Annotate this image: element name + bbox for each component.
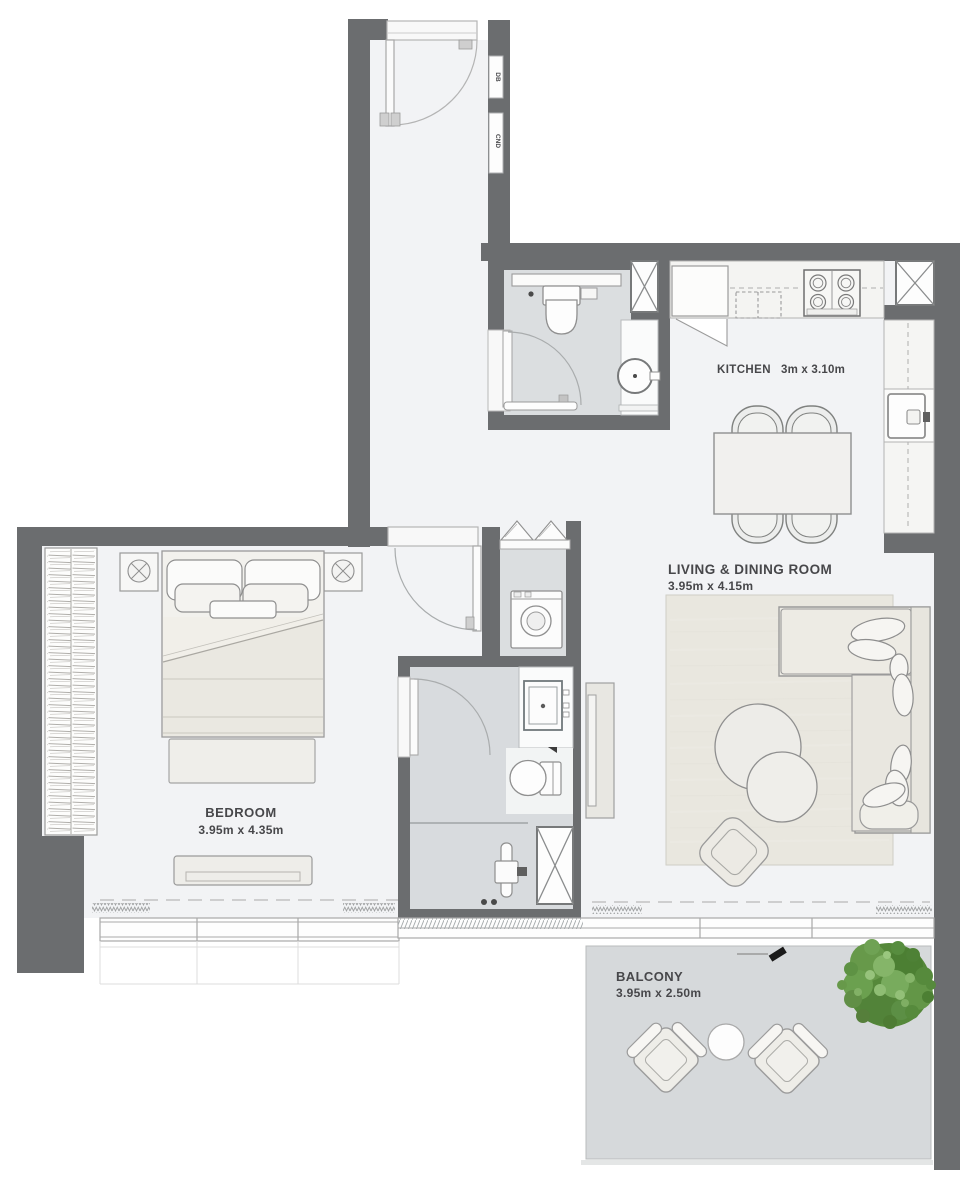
svg-text:3.95m x 4.15m: 3.95m x 4.15m — [668, 579, 753, 593]
svg-text:3.95m x 2.50m: 3.95m x 2.50m — [616, 986, 701, 1000]
svg-text:3m x 3.10m: 3m x 3.10m — [781, 364, 845, 376]
svg-text:BALCONY: BALCONY — [616, 969, 683, 984]
svg-text:BEDROOM: BEDROOM — [205, 805, 276, 820]
svg-text:3.95m x 4.35m: 3.95m x 4.35m — [198, 823, 283, 837]
svg-text:KITCHEN: KITCHEN — [717, 364, 771, 376]
svg-text:LIVING & DINING ROOM: LIVING & DINING ROOM — [668, 562, 832, 577]
svg-text:DB: DB — [494, 72, 501, 82]
svg-text:CND: CND — [494, 134, 501, 148]
